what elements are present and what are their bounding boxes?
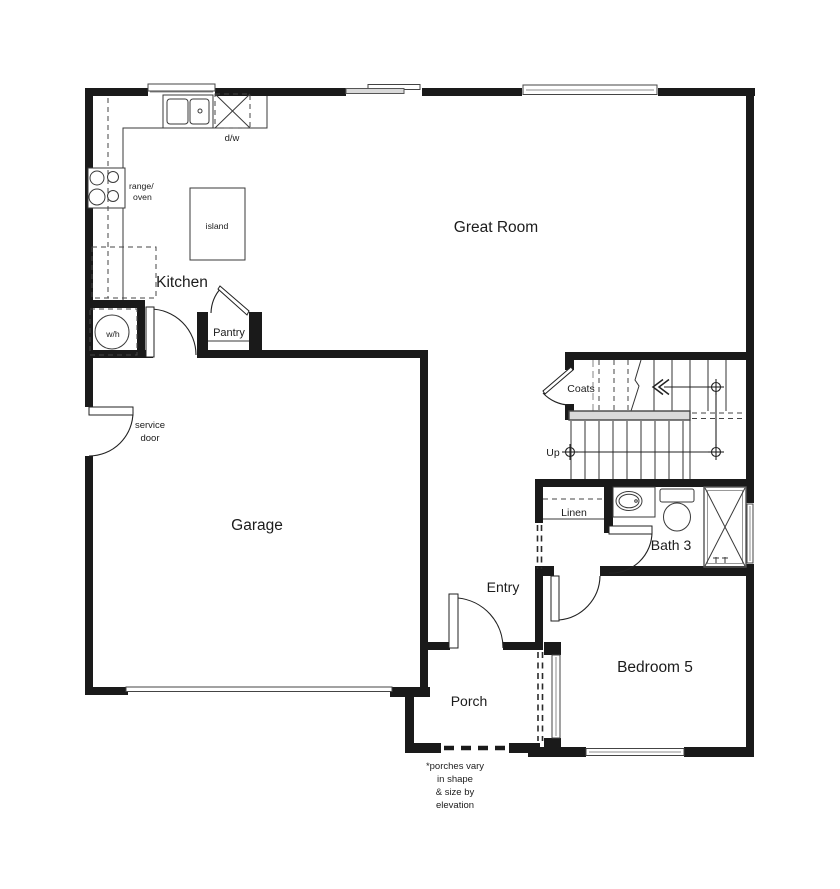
entry-label: Entry (487, 579, 520, 595)
kitchen-area (88, 94, 267, 355)
shower-drain (713, 557, 728, 563)
hall-cased-opening (538, 525, 542, 569)
pantry-label: Pantry (213, 327, 245, 339)
stairs (562, 360, 745, 479)
great-room-label: Great Room (454, 219, 538, 236)
kitchen-label: Kitchen (156, 274, 208, 291)
garage-door-header (126, 687, 392, 692)
service-door-label-1: service (135, 420, 165, 431)
range-label-1: range/ (129, 181, 154, 191)
refrigerator-space (92, 247, 156, 298)
dishwasher-label: d/w (225, 133, 240, 144)
service-door (84, 407, 133, 456)
lower-treads (571, 420, 690, 479)
range-label-2: oven (133, 192, 152, 202)
porch-note-line-4: elevation (436, 800, 474, 811)
porch-label: Porch (451, 693, 488, 709)
coats-label: Coats (567, 383, 594, 395)
range-oven (88, 168, 125, 208)
dishwasher (215, 94, 250, 128)
island-label: island (206, 221, 229, 231)
doors (84, 286, 652, 648)
shower (704, 487, 746, 567)
entry-door (449, 594, 503, 648)
up-label: Up (546, 447, 560, 459)
bedroom-5-label: Bedroom 5 (617, 659, 693, 676)
great-room-window (522, 85, 658, 97)
great-room-sliding-window (346, 85, 422, 98)
stair-break-line (631, 360, 641, 411)
bath-door (609, 526, 652, 573)
bedroom-rear-window (586, 748, 684, 757)
kitchen-sink (163, 95, 213, 128)
bedroom-side-window (552, 655, 560, 738)
service-door-label-2: door (140, 433, 159, 444)
vanity-sink (613, 487, 655, 517)
water-heater-label: w/h (105, 329, 120, 339)
pantry-door (211, 286, 249, 315)
floor-plan: Great Room Kitchen Garage Bedroom 5 Bath… (0, 0, 840, 889)
porch-note-line-2: in shape (437, 774, 473, 785)
floor-plan-drawing: Great Room Kitchen Garage Bedroom 5 Bath… (0, 0, 840, 889)
stair-handrail (569, 411, 690, 420)
porch-note-line-3: & size by (436, 787, 475, 798)
porch-roof-edge (538, 652, 543, 741)
porch-note-line-1: *porches vary (426, 761, 484, 772)
toilet (660, 489, 694, 531)
bath-3-label: Bath 3 (651, 537, 692, 553)
labels: Great Room Kitchen Garage Bedroom 5 Bath… (105, 133, 693, 811)
garage-label: Garage (231, 517, 283, 534)
bedroom-door (551, 576, 600, 621)
linen-label: Linen (561, 507, 587, 519)
